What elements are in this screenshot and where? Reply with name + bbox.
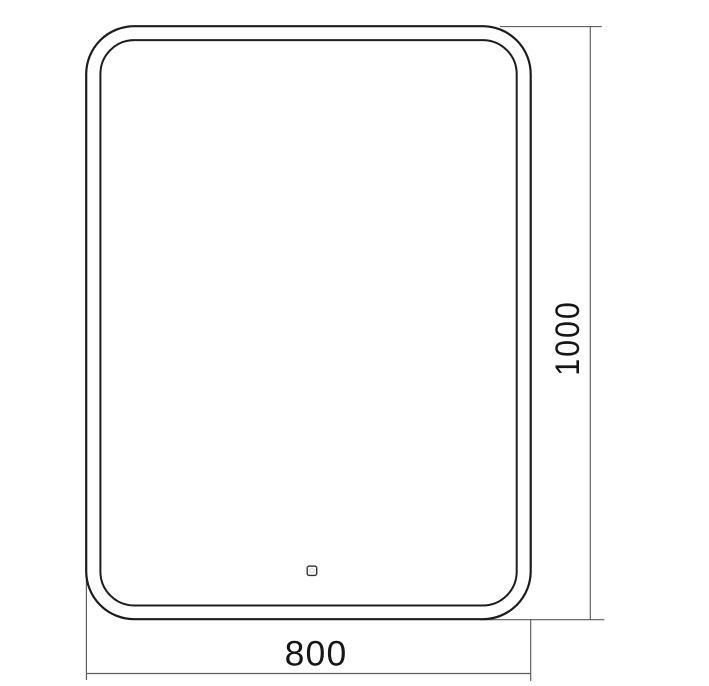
svg-text:800: 800 [285, 634, 348, 674]
svg-text:1000: 1000 [547, 300, 586, 375]
